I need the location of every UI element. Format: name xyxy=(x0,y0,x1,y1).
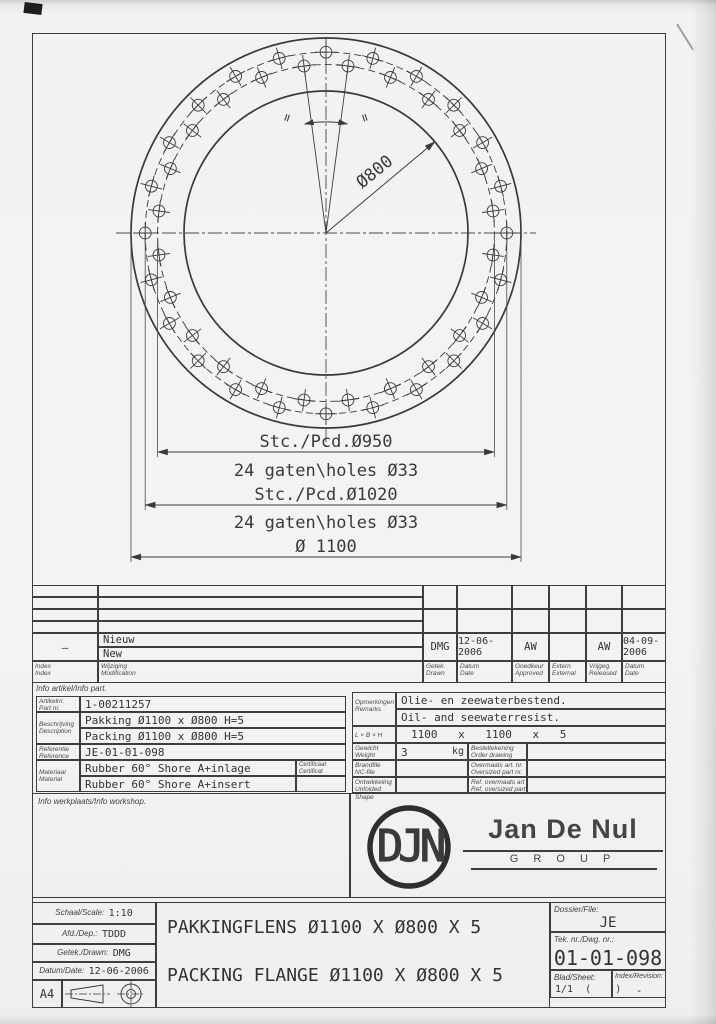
logo-group-text: G R O U P xyxy=(463,853,663,866)
department-value: TDDD xyxy=(102,929,126,940)
material-label: Materiaal Material xyxy=(36,760,80,792)
dossier-cell: Dossier/File: JE xyxy=(550,902,666,932)
drawing-number-cell: Tek. nr./Dwg. nr.: 01-01-098 xyxy=(550,932,666,970)
paper-sheet: = = Ø800 Stc./Pcd.Ø950 24 gaten\holes Ø3… xyxy=(0,0,716,1024)
pcd1020-holes-label: 24 gaten\holes Ø33 xyxy=(234,513,418,533)
revision-change-nl: Nieuw xyxy=(98,633,423,647)
revision-header-approved: Goedkeur Approved xyxy=(512,661,549,683)
sheet-cell: Blad/Sheet: 1/1 ( ) xyxy=(550,970,612,998)
revision-index: — xyxy=(32,633,98,661)
dossier-value: JE xyxy=(551,915,665,931)
material-nl-value: Rubber 60° Shore A+inlage xyxy=(80,760,296,776)
reference-value: JE-01-01-098 xyxy=(80,744,346,760)
revision-release-date: 04-09-2006 xyxy=(622,633,666,661)
djn-monogram-icon: DJN xyxy=(361,800,457,896)
remarks-label: Opmerkingen Remarks xyxy=(352,692,396,726)
part-nr-label: Artikelnr. Part nr. xyxy=(36,696,80,712)
drawing-number-label: Tek. nr./Dwg. nr.: xyxy=(554,935,614,945)
dossier-label: Dossier/File: xyxy=(554,905,598,915)
workshop-box: Info werkplaats/Info workshop. xyxy=(32,793,350,898)
paper-format: A4 xyxy=(32,980,62,1008)
logo-rule-top xyxy=(463,850,663,852)
index-revision-label: Index/Revision: xyxy=(615,973,663,981)
revision-header-external: Extern External xyxy=(549,661,586,683)
revision-approved: AW xyxy=(512,633,549,661)
remark-nl: Olie- en zeewaterbestend. xyxy=(396,692,666,709)
brandfile-label: Brandfile NC-file xyxy=(352,760,396,777)
drawn-label: Getek./Drawn: xyxy=(57,948,108,958)
revision-header-drawn: Getek. Drawn xyxy=(423,661,457,683)
revision-header-date: Datum Date xyxy=(457,661,512,683)
order-drawing-label: Besteltekening Order drawing xyxy=(468,743,527,760)
revision-date: 12-06-2006 xyxy=(457,633,512,661)
ref-oversized-label: Ref. overmaats art Ref. oversized part xyxy=(468,777,527,793)
centerlines xyxy=(116,37,536,447)
scale-label: Schaal/Scale: xyxy=(55,908,104,918)
index-revision-value: - xyxy=(613,984,665,997)
unfolded-label: Ontwikkeling Unfolded Shape xyxy=(352,777,396,793)
logo-box: DJN Jan De Nul G R O U P xyxy=(350,793,666,898)
revision-external xyxy=(549,633,586,661)
title-area: PAKKINGFLENS Ø1100 X Ø800 X 5 PACKING FL… xyxy=(156,902,550,1008)
revision-header-change: Wijziging Modification xyxy=(98,661,423,683)
description-en-value: Packing Ø1100 x Ø800 H=5 xyxy=(80,728,346,744)
certificate-label: Certificaat Certificat xyxy=(296,760,346,776)
remark-en: Oil- and seewaterresist. xyxy=(396,709,666,726)
revision-header-date2: Datum Date xyxy=(622,661,666,683)
revision-released: AW xyxy=(586,633,622,661)
info-part-title: Info artikel/Info part. xyxy=(36,684,107,694)
flange-drawing: = = Ø800 Stc./Pcd.Ø950 24 gaten\holes Ø3… xyxy=(0,0,716,585)
description-label: Beschrijving Description xyxy=(36,712,80,744)
title-dutch: PAKKINGFLENS Ø1100 X Ø800 X 5 xyxy=(167,917,481,938)
scanned-drawing-page: = = Ø800 Stc./Pcd.Ø950 24 gaten\holes Ø3… xyxy=(0,0,716,1024)
outer-diameter-label: Ø 1100 xyxy=(295,537,356,557)
date-label: Datum/Date: xyxy=(39,966,84,976)
part-nr-value: 1-00211257 xyxy=(80,696,346,712)
weight-unit: kg xyxy=(452,746,464,757)
date-value: 12-06-2006 xyxy=(89,966,149,977)
lbh-label: L × B × H xyxy=(352,726,396,743)
pcd1020-label: Stc./Pcd.Ø1020 xyxy=(254,485,397,505)
title-english: PACKING FLANGE Ø1100 X Ø800 X 5 xyxy=(167,965,503,986)
logo-rule-bottom xyxy=(471,868,657,870)
reference-label: Referentie Reference xyxy=(36,744,80,760)
scale-value: 1:10 xyxy=(109,908,133,919)
weight-label: Gewicht Weight xyxy=(352,743,396,760)
revision-header-index: Index Index xyxy=(32,661,98,683)
pcd950-label: Stc./Pcd.Ø950 xyxy=(259,432,392,452)
weight-value: 3 xyxy=(401,746,408,759)
revision-header-released: Vrijgeg. Released xyxy=(586,661,622,683)
revision-drawn: DMG xyxy=(423,633,457,661)
equal-mark-left: = xyxy=(279,112,296,124)
equal-mark-right: = xyxy=(356,112,373,124)
drawn-value: DMG xyxy=(113,948,131,959)
material-en-value: Rubber 60° Shore A+insert xyxy=(80,776,296,792)
workshop-title: Info werkplaats/Info workshop. xyxy=(38,797,146,807)
sheet-label: Blad/Sheet: xyxy=(554,973,595,983)
description-nl-value: Pakking Ø1100 x Ø800 H=5 xyxy=(80,712,346,728)
lbh-value: 1100 x 1100 x 5 xyxy=(396,726,666,743)
revision-change-en: New xyxy=(98,647,423,661)
oversized-label: Overmaats art. nr. Oversized part nr. xyxy=(468,760,527,777)
bore-dimension-label: Ø800 xyxy=(353,151,397,192)
drawing-number-value: 01-01-098 xyxy=(551,946,665,970)
pcd950-holes-label: 24 gaten\holes Ø33 xyxy=(234,461,418,481)
logo-wordmark: Jan De Nul xyxy=(463,816,663,843)
index-revision-cell: Index/Revision: - xyxy=(612,970,666,998)
department-label: Afd./Dep.: xyxy=(62,929,98,939)
projection-symbol-icon xyxy=(63,981,155,1007)
djn-monogram-letters: DJN xyxy=(377,821,444,872)
